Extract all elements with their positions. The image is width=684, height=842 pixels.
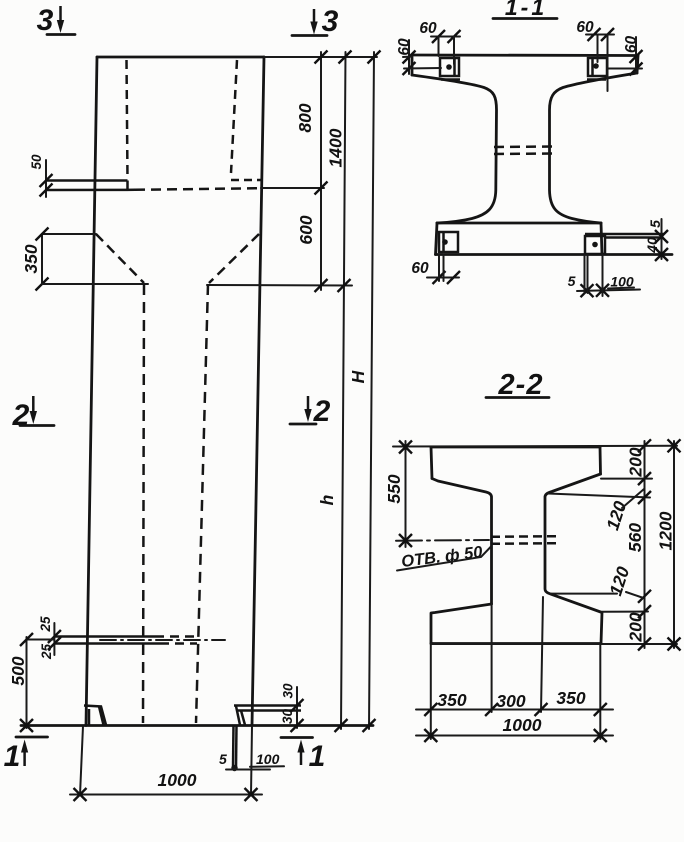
svg-text:1000: 1000 xyxy=(158,770,197,790)
svg-text:60: 60 xyxy=(419,20,437,37)
svg-text:300: 300 xyxy=(496,691,525,711)
svg-text:350: 350 xyxy=(556,688,585,708)
svg-text:1: 1 xyxy=(309,740,326,773)
svg-text:1200: 1200 xyxy=(656,511,676,550)
svg-text:800: 800 xyxy=(295,103,315,132)
svg-text:200: 200 xyxy=(626,612,646,642)
svg-text:1000: 1000 xyxy=(503,715,542,735)
svg-text:1-1: 1-1 xyxy=(505,0,547,20)
svg-text:60: 60 xyxy=(576,19,594,36)
svg-text:H: H xyxy=(348,370,368,383)
svg-text:3: 3 xyxy=(37,4,54,37)
svg-text:3: 3 xyxy=(322,5,339,38)
svg-text:560: 560 xyxy=(625,523,645,552)
svg-text:1400: 1400 xyxy=(326,128,346,167)
svg-text:30: 30 xyxy=(281,683,296,699)
svg-text:60: 60 xyxy=(623,36,640,54)
svg-text:2: 2 xyxy=(12,399,30,432)
svg-text:500: 500 xyxy=(8,656,28,685)
svg-text:350: 350 xyxy=(21,244,41,273)
svg-text:50: 50 xyxy=(29,154,44,170)
svg-text:350: 350 xyxy=(437,690,466,710)
svg-text:60: 60 xyxy=(411,260,429,277)
svg-text:h: h xyxy=(317,495,337,506)
svg-text:25: 25 xyxy=(38,616,53,633)
svg-text:5: 5 xyxy=(219,751,227,767)
svg-text:25: 25 xyxy=(39,644,54,661)
svg-text:100: 100 xyxy=(256,751,280,767)
svg-text:200: 200 xyxy=(626,447,646,477)
svg-text:1: 1 xyxy=(4,740,21,773)
svg-text:600: 600 xyxy=(296,215,316,244)
svg-text:30: 30 xyxy=(280,709,295,725)
svg-text:ОТВ. ф 50: ОТВ. ф 50 xyxy=(400,543,484,571)
svg-text:5: 5 xyxy=(568,273,576,289)
svg-text:60: 60 xyxy=(396,38,413,56)
svg-text:550: 550 xyxy=(384,474,404,503)
